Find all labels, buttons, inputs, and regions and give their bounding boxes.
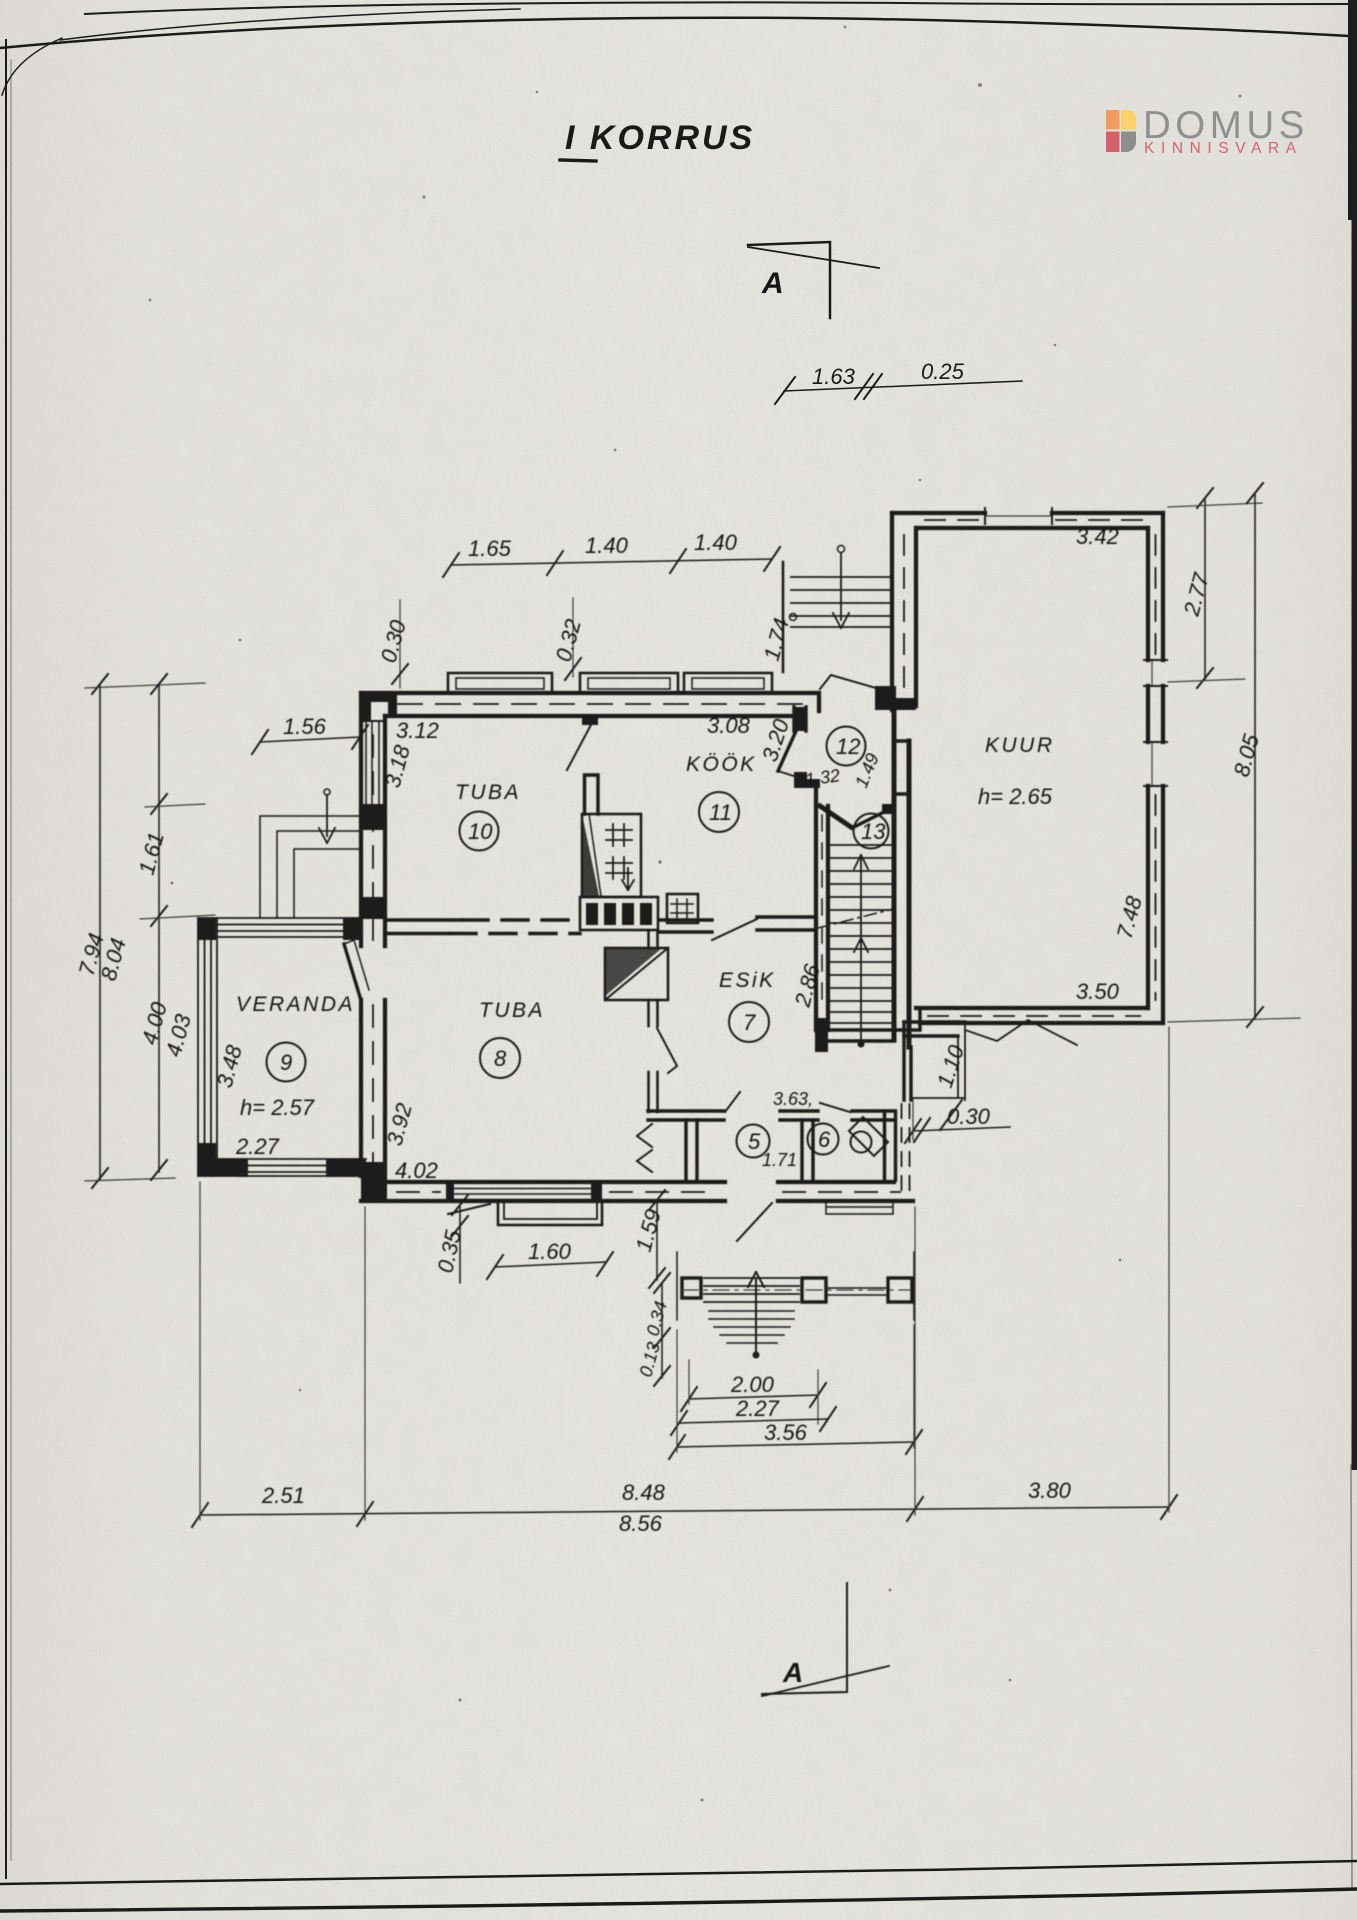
svg-text:3.63,: 3.63,	[773, 1089, 813, 1109]
svg-text:h= 2.65: h= 2.65	[978, 784, 1053, 809]
svg-text:KUUR: KUUR	[985, 734, 1055, 757]
svg-text:3.42: 3.42	[1076, 524, 1119, 549]
svg-text:3.12: 3.12	[396, 718, 439, 743]
svg-text:1.63: 1.63	[812, 364, 856, 389]
svg-text:7: 7	[743, 1010, 756, 1035]
svg-text:1.60: 1.60	[528, 1239, 572, 1264]
svg-text:1.40: 1.40	[694, 530, 738, 555]
svg-text:8: 8	[494, 1046, 507, 1071]
svg-text:9: 9	[280, 1050, 292, 1075]
svg-text:A: A	[761, 267, 784, 300]
svg-text:ESiK: ESiK	[719, 969, 776, 992]
svg-text:13: 13	[861, 819, 886, 844]
svg-text:3.08: 3.08	[707, 713, 751, 738]
svg-text:2.27: 2.27	[235, 1134, 280, 1159]
svg-text:h= 2.57: h= 2.57	[240, 1095, 315, 1120]
svg-text:1.65: 1.65	[468, 536, 512, 561]
svg-text:5: 5	[748, 1129, 761, 1154]
svg-text:TUBA: TUBA	[455, 781, 521, 804]
svg-text:4.02: 4.02	[395, 1158, 438, 1183]
svg-text:1.71: 1.71	[762, 1150, 797, 1170]
svg-text:1.40: 1.40	[585, 533, 629, 558]
svg-text:VERANDA: VERANDA	[236, 993, 355, 1016]
svg-text:KINNISVARA: KINNISVARA	[1144, 140, 1303, 157]
svg-text:TUBA: TUBA	[479, 999, 545, 1022]
svg-text:6: 6	[818, 1127, 831, 1152]
svg-text:2.51: 2.51	[261, 1483, 305, 1508]
svg-text:2.00: 2.00	[730, 1372, 775, 1397]
svg-text:0.25: 0.25	[921, 359, 965, 384]
svg-text:1.56: 1.56	[283, 714, 327, 739]
svg-text:10: 10	[468, 819, 493, 844]
svg-text:12: 12	[836, 734, 860, 759]
svg-text:3.80: 3.80	[1028, 1478, 1072, 1503]
svg-text:11: 11	[709, 800, 732, 825]
svg-text:I KORRUS: I KORRUS	[565, 119, 755, 157]
svg-text:KÖÖK: KÖÖK	[686, 753, 757, 776]
svg-text:3.50: 3.50	[1076, 979, 1120, 1004]
svg-text:8.48: 8.48	[622, 1480, 666, 1505]
svg-text:8.56: 8.56	[619, 1511, 663, 1536]
svg-text:3.56: 3.56	[764, 1420, 808, 1445]
svg-text:2.27: 2.27	[735, 1396, 780, 1421]
svg-text:0.30: 0.30	[947, 1104, 991, 1129]
svg-text:A: A	[782, 1657, 803, 1688]
